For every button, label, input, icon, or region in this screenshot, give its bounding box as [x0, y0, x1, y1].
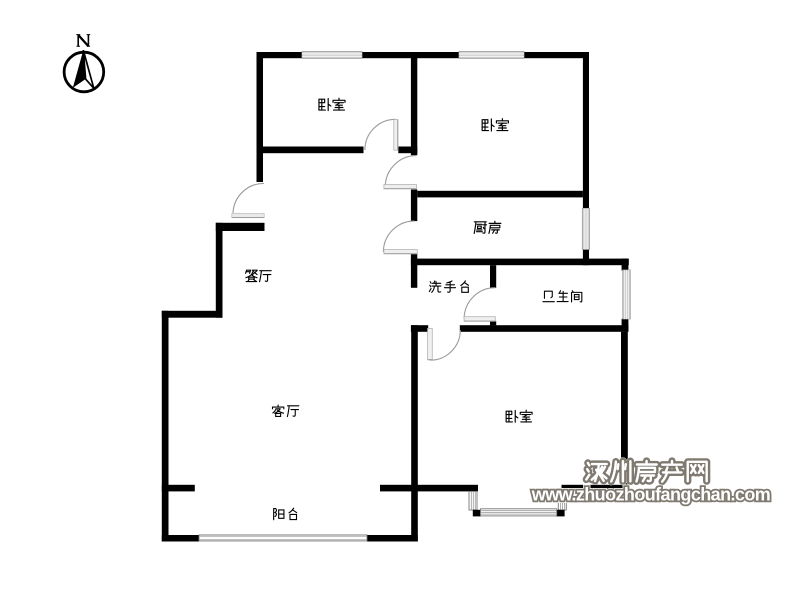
svg-text:www.zhuozhoufangchan.com: www.zhuozhoufangchan.com	[531, 484, 770, 504]
